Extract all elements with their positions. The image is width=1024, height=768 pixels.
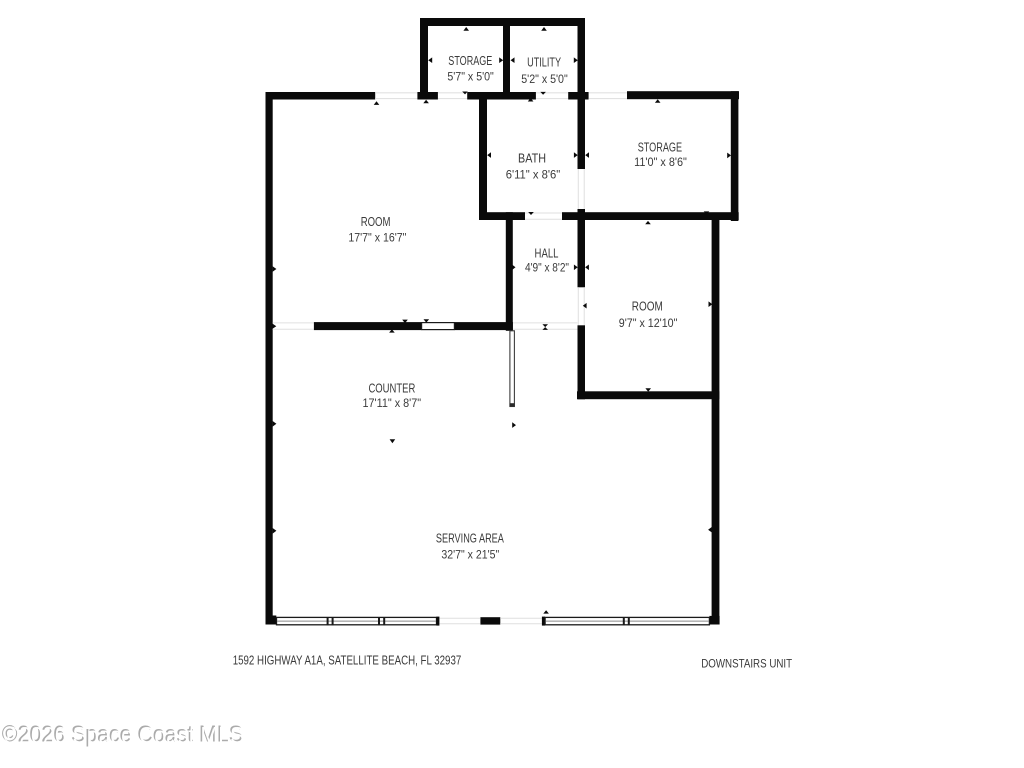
svg-text:6'11" x 8'6": 6'11" x 8'6" (506, 167, 561, 181)
svg-text:STORAGE: STORAGE (638, 140, 682, 154)
svg-text:5'7" x 5'0": 5'7" x 5'0" (447, 70, 494, 84)
svg-text:17'7" x 16'7": 17'7" x 16'7" (348, 231, 406, 245)
svg-text:SERVING AREA: SERVING AREA (436, 532, 504, 546)
svg-text:4'9" x 8'2": 4'9" x 8'2" (525, 261, 569, 275)
svg-text:17'11" x 8'7": 17'11" x 8'7" (363, 396, 422, 410)
svg-text:DOWNSTAIRS UNIT: DOWNSTAIRS UNIT (701, 658, 792, 671)
svg-text:5'2" x 5'0": 5'2" x 5'0" (521, 72, 568, 86)
svg-text:BATH: BATH (518, 152, 546, 166)
svg-text:©2026 Space Coast MLS: ©2026 Space Coast MLS (3, 722, 244, 748)
svg-text:COUNTER: COUNTER (368, 381, 415, 395)
svg-text:9'7" x 12'10": 9'7" x 12'10" (619, 316, 678, 330)
svg-text:ROOM: ROOM (361, 215, 391, 229)
svg-text:HALL: HALL (535, 247, 559, 261)
svg-text:UTILITY: UTILITY (527, 56, 561, 70)
svg-text:11'0" x 8'6": 11'0" x 8'6" (634, 155, 687, 169)
svg-text:32'7" x 21'5": 32'7" x 21'5" (441, 547, 499, 561)
svg-text:ROOM: ROOM (632, 300, 663, 314)
svg-text:1592 HIGHWAY A1A, SATELLITE BE: 1592 HIGHWAY A1A, SATELLITE BEACH, FL 32… (233, 654, 462, 668)
svg-text:STORAGE: STORAGE (448, 54, 492, 68)
